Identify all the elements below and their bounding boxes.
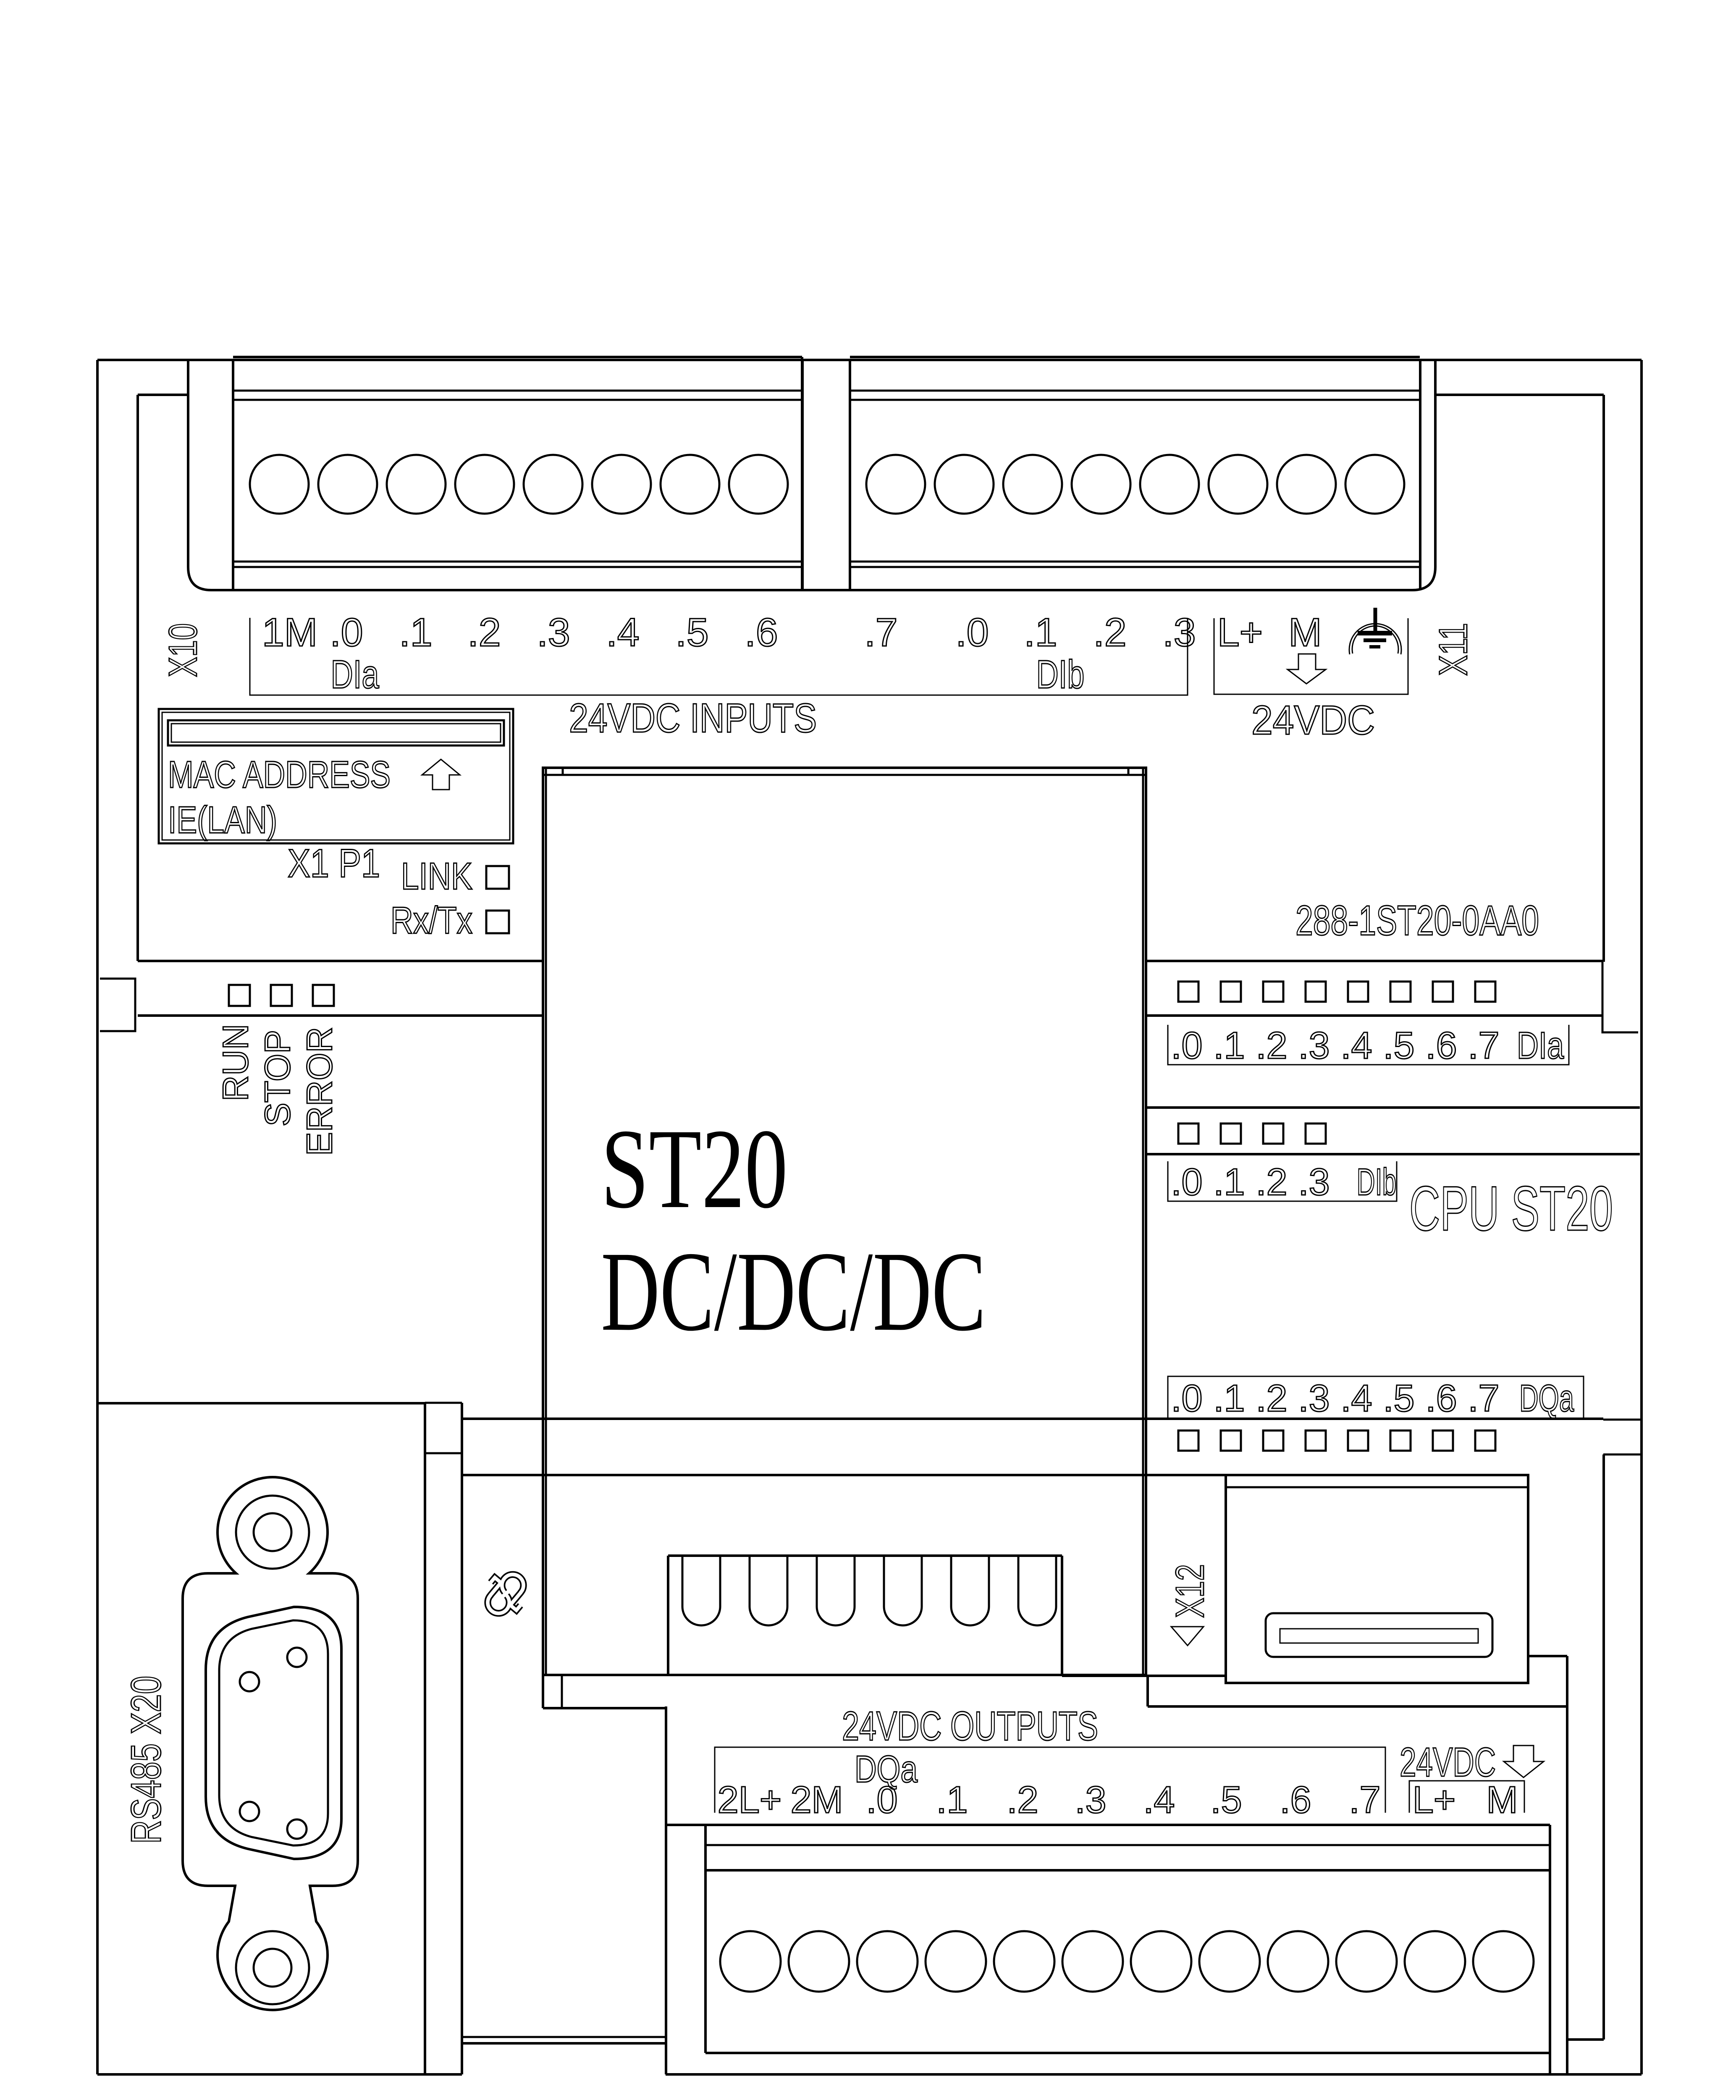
svg-text:.5: .5 (1383, 1378, 1414, 1420)
svg-text:2L+: 2L+ (718, 1779, 782, 1821)
svg-text:X11: X11 (1431, 623, 1476, 676)
svg-text:STOP: STOP (258, 1030, 298, 1126)
svg-text:.0: .0 (1171, 1161, 1202, 1203)
svg-text:.1: .1 (936, 1779, 968, 1821)
svg-text:RS485 X20: RS485 X20 (123, 1676, 170, 1844)
svg-text:.5: .5 (675, 610, 708, 655)
svg-text:.7: .7 (864, 610, 897, 655)
svg-text:MAC ADDRESS: MAC ADDRESS (168, 754, 391, 796)
svg-text:.3: .3 (537, 610, 570, 655)
svg-text:.0: .0 (866, 1779, 897, 1821)
svg-text:.7: .7 (1468, 1378, 1499, 1420)
svg-text:.2: .2 (1256, 1161, 1287, 1203)
svg-text:M: M (1288, 610, 1322, 655)
svg-text:L+: L+ (1413, 1779, 1456, 1821)
svg-text:.5: .5 (1383, 1025, 1414, 1067)
svg-text:DIb: DIb (1357, 1161, 1397, 1203)
svg-text:.1: .1 (1213, 1378, 1245, 1420)
svg-text:.6: .6 (745, 610, 778, 655)
svg-text:.0: .0 (1171, 1025, 1202, 1067)
svg-text:DIb: DIb (1036, 652, 1085, 697)
svg-text:.2: .2 (1256, 1025, 1287, 1067)
svg-text:L+: L+ (1217, 610, 1263, 655)
svg-text:ERROR: ERROR (300, 1027, 340, 1156)
svg-text:X10: X10 (161, 623, 205, 677)
svg-text:2M: 2M (790, 1779, 843, 1821)
svg-text:.3: .3 (1298, 1161, 1330, 1203)
svg-text:.0: .0 (330, 610, 363, 655)
svg-text:RUN: RUN (216, 1024, 256, 1101)
svg-text:.0: .0 (955, 610, 989, 655)
svg-text:LINK: LINK (401, 856, 472, 898)
svg-text:M: M (1487, 1779, 1518, 1821)
svg-text:DC/DC/DC: DC/DC/DC (601, 1228, 986, 1354)
svg-text:.1: .1 (1213, 1025, 1245, 1067)
svg-text:.2: .2 (1256, 1378, 1287, 1420)
svg-text:1M: 1M (262, 610, 317, 655)
svg-text:.4: .4 (606, 610, 639, 655)
svg-text:.1: .1 (399, 610, 432, 655)
svg-text:.5: .5 (1210, 1779, 1242, 1821)
svg-text:288-1ST20-0AA0: 288-1ST20-0AA0 (1295, 897, 1539, 944)
svg-text:.7: .7 (1349, 1779, 1380, 1821)
svg-text:.4: .4 (1143, 1779, 1175, 1821)
svg-text:IE(LAN): IE(LAN) (168, 799, 277, 841)
svg-text:.0: .0 (1171, 1378, 1202, 1420)
svg-text:DQa: DQa (1519, 1378, 1574, 1420)
svg-text:24VDC OUTPUTS: 24VDC OUTPUTS (842, 1703, 1098, 1749)
svg-text:24VDC: 24VDC (1400, 1739, 1496, 1785)
svg-text:.4: .4 (1340, 1025, 1372, 1067)
svg-text:.3: .3 (1162, 610, 1196, 655)
svg-text:.1: .1 (1024, 610, 1057, 655)
svg-text:24VDC: 24VDC (1251, 697, 1375, 743)
svg-text:DIa: DIa (331, 652, 379, 697)
svg-text:CPU ST20: CPU ST20 (1409, 1173, 1613, 1244)
svg-text:.6: .6 (1280, 1779, 1311, 1821)
svg-text:X1 P1: X1 P1 (288, 841, 380, 886)
svg-text:.6: .6 (1425, 1025, 1457, 1067)
svg-text:.1: .1 (1213, 1161, 1245, 1203)
svg-text:.2: .2 (1093, 610, 1126, 655)
svg-text:DIa: DIa (1517, 1025, 1564, 1067)
svg-text:.7: .7 (1468, 1025, 1499, 1067)
svg-text:.3: .3 (1075, 1779, 1106, 1821)
svg-text:.2: .2 (1007, 1779, 1038, 1821)
svg-text:.3: .3 (1298, 1378, 1330, 1420)
svg-text:.4: .4 (1340, 1378, 1372, 1420)
svg-text:.2: .2 (467, 610, 501, 655)
svg-text:24VDC INPUTS: 24VDC INPUTS (569, 695, 817, 741)
svg-text:.3: .3 (1298, 1025, 1330, 1067)
svg-text:.6: .6 (1425, 1378, 1457, 1420)
svg-text:ST20: ST20 (601, 1105, 788, 1232)
svg-text:X12: X12 (1168, 1564, 1212, 1618)
svg-text:Rx/Tx: Rx/Tx (391, 900, 472, 942)
